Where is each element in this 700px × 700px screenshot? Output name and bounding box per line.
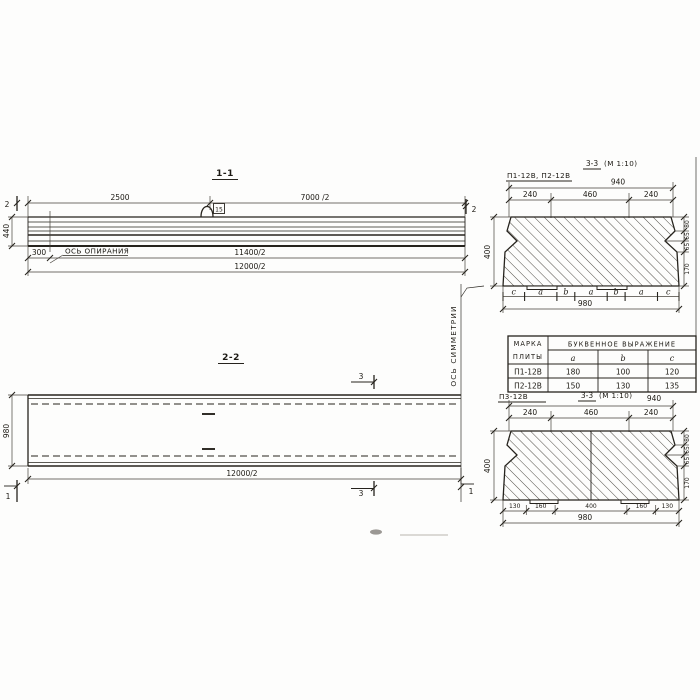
row1-c: 120 (665, 368, 680, 377)
table-header-marka: МАРКА (514, 340, 543, 348)
lifting-loop-tag: 15 (215, 207, 223, 214)
dim-65b-b: 65 (684, 457, 691, 465)
cut-mark-2-right: 2 (466, 199, 477, 214)
letter-a2: a (589, 288, 594, 297)
symmetry-axis: ОСЬ СИММЕТРИИ (449, 284, 484, 502)
dim-440: 440 (2, 224, 11, 239)
plate-label-p1-p2: П1-12В, П2-12В (507, 171, 570, 180)
section-3-3-p3: П3-12В 3-3 (М 1:10) 940 240 460 240 400 (483, 391, 691, 527)
dim-130r: 130 (662, 503, 674, 510)
cut-mark-3-top: 3 (351, 372, 374, 389)
dim-80: 80 (684, 220, 691, 228)
dim-240-left-b: 240 (523, 408, 538, 417)
section-3-3-bottom-title: 3-3 (581, 391, 593, 400)
letter-c2: c (666, 288, 671, 297)
cut-mark-1-right-label: 1 (469, 487, 474, 496)
cut-mark-3-top-label: 3 (359, 372, 364, 381)
letter-b2: b (614, 288, 619, 297)
table-row: П2-12В 150 130 135 (514, 382, 679, 391)
dim-240-right-b: 240 (644, 408, 659, 417)
row2-c: 135 (665, 382, 680, 391)
dim-65a: 65 (684, 232, 691, 240)
dim-980-bottom-section: 980 (503, 513, 679, 523)
table-col-a: a (571, 354, 576, 363)
row2-a: 150 (566, 382, 581, 391)
dim-240-left: 240 (523, 190, 538, 199)
plate-label-p3: П3-12В (499, 392, 528, 401)
row1-b: 100 (616, 368, 631, 377)
table-col-b: b (620, 354, 625, 363)
slab-elevation-body (28, 217, 465, 246)
dim-980-label: 980 (578, 299, 593, 308)
letter-a1: a (538, 288, 543, 297)
dim-400-label-b: 400 (483, 459, 492, 474)
table-header-span: БУКВЕННОЕ ВЫРАЖЕНИЕ (568, 341, 676, 349)
bearing-strip-right (597, 286, 627, 290)
row2-b: 130 (616, 382, 631, 391)
dim-980-plan: 980 (2, 424, 11, 439)
dim-65b: 65 (684, 243, 691, 251)
dim-row-top: 2500 7000 /2 (28, 193, 465, 217)
dim-400-b: 400 (585, 503, 597, 510)
dim-130l: 130 (509, 503, 521, 510)
section-3-3-top-scale: (М 1:10) (604, 159, 637, 168)
scan-artifacts (370, 529, 448, 536)
row1-mark: П1-12В (514, 368, 542, 377)
section-3-3-top-title: 3-3 (586, 159, 598, 168)
dims-top-240-460-240: 240 460 240 (509, 190, 673, 218)
dims-bottom-240-460-240: 240 460 240 (509, 408, 673, 432)
blueprint-sheet: 1-1 15 2500 7000 / (0, 0, 700, 700)
dim-160r: 160 (636, 503, 648, 510)
row2-mark: П2-12В (514, 382, 542, 391)
row1-a: 180 (566, 368, 581, 377)
dim-460: 460 (583, 190, 598, 199)
dim-170: 170 (684, 263, 691, 275)
table-row: П1-12В 180 100 120 (514, 368, 679, 377)
section-1-1: 1-1 15 2500 7000 / (2, 169, 477, 276)
dim-80-b: 80 (684, 434, 691, 442)
support-axis-label: ОСЬ ОПИРАНИЯ (65, 247, 129, 256)
symmetry-axis-label: ОСЬ СИММЕТРИИ (449, 305, 458, 386)
dim-940-bottom: 940 (647, 394, 662, 403)
dim-12000-2-plan: 12000/2 (226, 469, 257, 478)
dim-height: 440 (2, 217, 28, 246)
cut-mark-1-left: 1 (4, 480, 17, 502)
dim-940-top: 940 (611, 178, 626, 187)
section-3-3-bottom-scale: (М 1:10) (599, 391, 632, 400)
dim-11400-2: 11400/2 (234, 248, 265, 257)
dim-170-b: 170 (684, 477, 691, 489)
slab-plan-body (28, 395, 461, 466)
letter-values-table: МАРКА ПЛИТЫ БУКВЕННОЕ ВЫРАЖЕНИЕ a b c П1… (508, 336, 696, 392)
dim-plan-width: 980 (2, 395, 28, 466)
letter-c1: c (512, 288, 517, 297)
letter-b1: b (563, 288, 568, 297)
dim-300: 300 (32, 248, 47, 257)
support-axis-callout: ОСЬ ОПИРАНИЯ (50, 247, 129, 264)
dim-2500: 2500 (110, 193, 129, 202)
dim-7000-2: 7000 /2 (301, 193, 330, 202)
dim-240-right: 240 (644, 190, 659, 199)
table-header-plity: ПЛИТЫ (513, 353, 543, 361)
dim-980-label-b: 980 (578, 513, 593, 522)
section-2-2-title: 2-2 (222, 353, 240, 363)
slab-drawing: 1-1 15 2500 7000 / (0, 0, 700, 700)
dim-12000-2: 12000/2 (234, 262, 265, 271)
cut-mark-2-right-label: 2 (472, 205, 477, 214)
cut-mark-2-left: 2 (5, 196, 17, 211)
dim-row-overall: 12000/2 (28, 262, 465, 272)
lifting-loop: 15 (201, 204, 225, 218)
table-col-c: c (670, 354, 675, 363)
dim-400-label: 400 (483, 245, 492, 260)
letter-a3: a (639, 288, 644, 297)
cut-mark-1-left-label: 1 (6, 492, 11, 501)
section-1-1-title: 1-1 (216, 169, 234, 179)
dim-460-b: 460 (584, 408, 599, 417)
cut-mark-3-bottom-label: 3 (359, 489, 364, 498)
section-2-2: 2-2 3 980 (2, 284, 484, 502)
dim-plan-length: 12000/2 (28, 468, 461, 484)
dim-160l: 160 (535, 503, 547, 510)
cut-mark-2-left-label: 2 (5, 200, 10, 209)
cut-mark-3-bottom: 3 (351, 481, 374, 498)
cross-section-body-p1-p2 (503, 217, 679, 286)
dim-65a-b: 65 (684, 446, 691, 454)
